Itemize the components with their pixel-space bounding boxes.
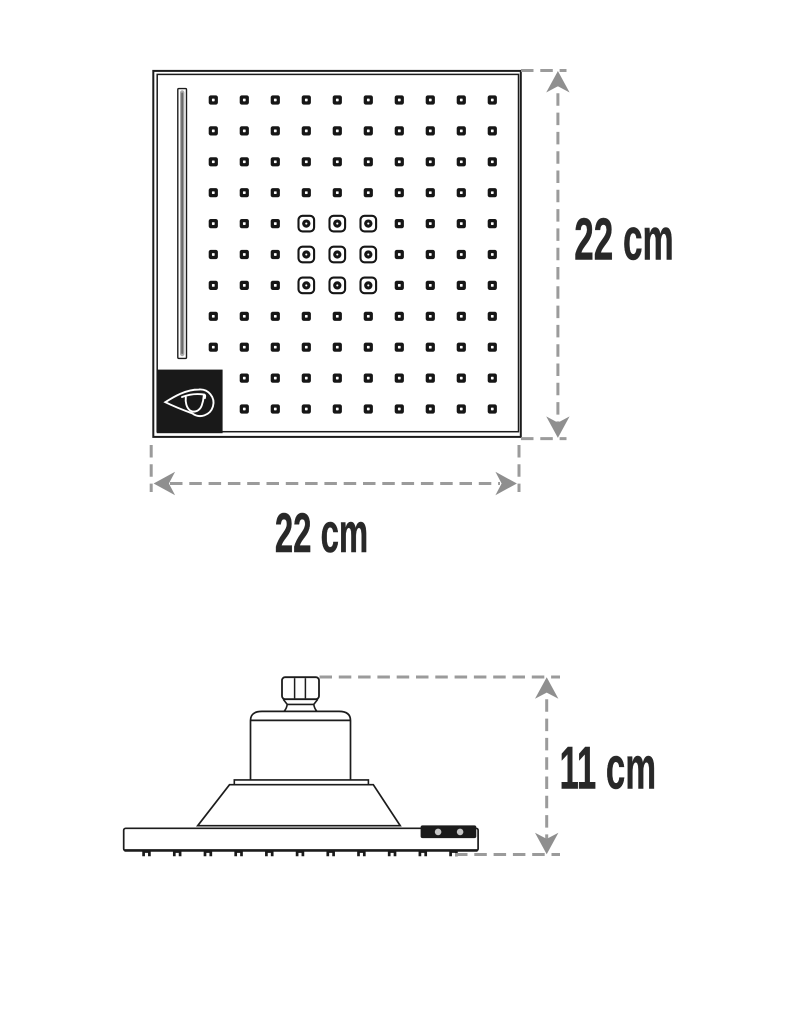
svg-text:22 cm: 22 cm (574, 207, 674, 273)
svg-text:11 cm: 11 cm (560, 736, 657, 802)
svg-text:22 cm: 22 cm (275, 501, 368, 564)
